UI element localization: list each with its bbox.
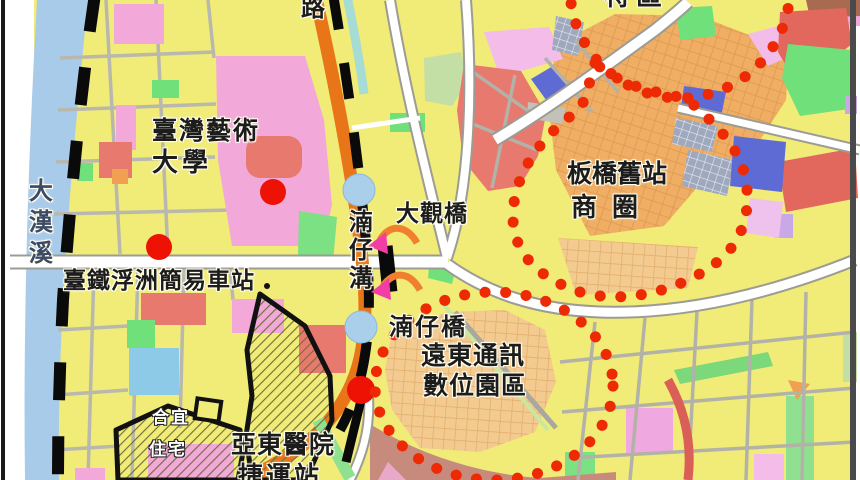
label-fareastone-line1: 遠東通訊 [421, 341, 525, 371]
map-canvas [0, 0, 860, 480]
poi-marker-university [260, 179, 286, 205]
label-tra-station: 臺鐵浮洲簡易車站 [63, 268, 255, 295]
map-dot [264, 283, 270, 289]
label-banqiao-old-station-line2: 商 圈 [571, 193, 641, 224]
label-nanzai-bridge: 湳仔橋 [389, 313, 467, 341]
label-housing-line2: 住宅 [149, 440, 187, 460]
urban-planning-map: 大漢溪 路 特區 臺灣藝術 大學 臺鐵浮洲簡易車站 大觀橋 湳仔溝 湳仔橋 板橋… [0, 0, 860, 480]
label-district-partial: 特區 [604, 0, 668, 13]
label-fareastone-line2: 數位園區 [423, 371, 527, 401]
label-banqiao-old-station-line1: 板橋舊站 [567, 159, 667, 189]
label-hospital-line1: 亞東醫院 [231, 430, 335, 460]
label-housing-line1: 合宜 [152, 408, 190, 428]
poi-marker-tra-station [146, 234, 172, 260]
label-road-partial: 路 [301, 0, 325, 22]
station-circle-north [343, 174, 375, 206]
label-university-line2: 大學 [152, 148, 212, 179]
label-hospital-line2: 捷運站 [238, 461, 322, 480]
label-university-line1: 臺灣藝術 [152, 116, 260, 146]
label-nanzai-ditch: 湳仔溝 [344, 209, 372, 293]
housing-zone-notch [195, 398, 222, 421]
label-daguan-bridge: 大觀橋 [396, 201, 468, 228]
station-circle-south [345, 311, 377, 343]
label-dahan-river: 大漢溪 [24, 178, 52, 271]
